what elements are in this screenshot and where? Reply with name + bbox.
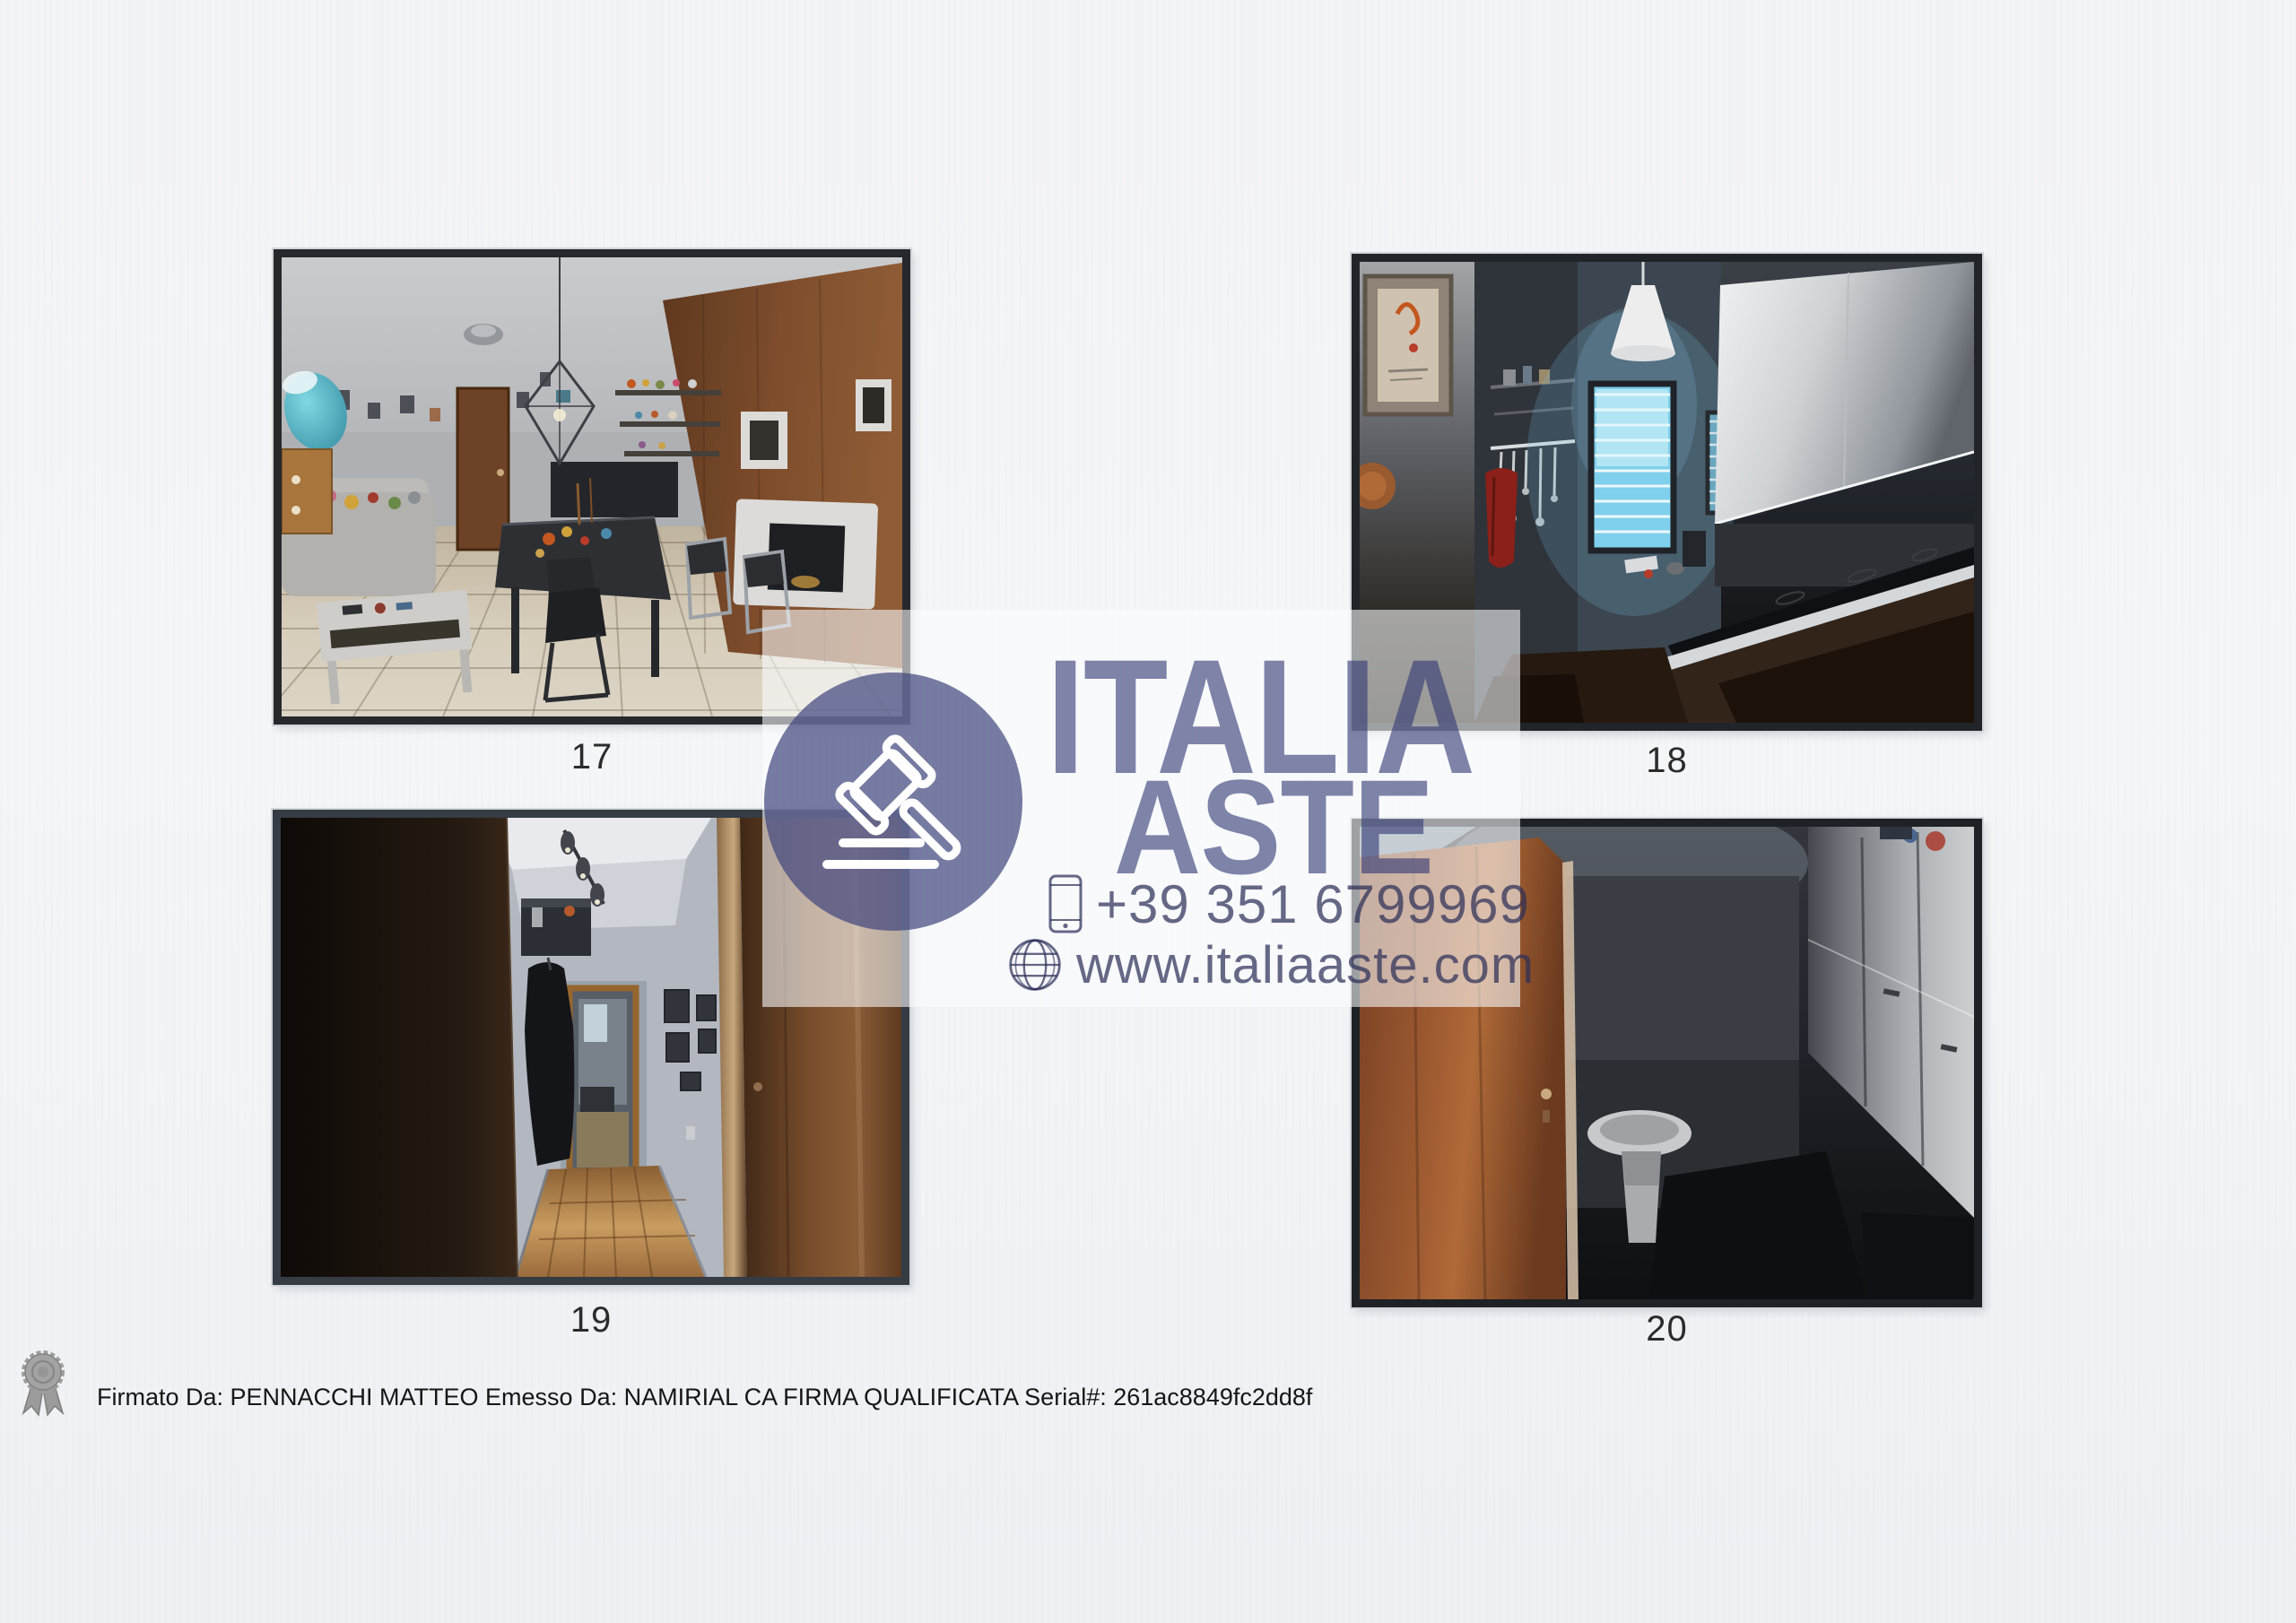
signature-text: Firmato Da: PENNACCHI MATTEO Emesso Da: …: [97, 1383, 1312, 1411]
photo-caption-19: 19: [273, 1302, 909, 1338]
photo-caption-20: 20: [1352, 1311, 1982, 1347]
scanned-document-page: 17 18 19 20 ITALIA ASTE: [0, 0, 2296, 1623]
photo-20-image: [1360, 827, 1974, 1299]
photo-19-hallway: [273, 810, 909, 1285]
photo-caption-18: 18: [1352, 742, 1982, 778]
photo-17-image: [282, 257, 902, 716]
photo-caption-17: 17: [274, 739, 910, 775]
phone-icon: [1048, 873, 1083, 934]
photo-20-utility-room: [1352, 819, 1982, 1307]
globe-icon: [1006, 936, 1064, 994]
ribbon-seal-icon: [14, 1349, 72, 1420]
photo-17-living-room: [274, 249, 910, 725]
digital-signature: Firmato Da: PENNACCHI MATTEO Emesso Da: …: [14, 1349, 1312, 1420]
photo-19-image: [281, 818, 901, 1277]
photo-18-image: [1360, 262, 1974, 723]
photo-18-kitchen: [1352, 254, 1982, 731]
